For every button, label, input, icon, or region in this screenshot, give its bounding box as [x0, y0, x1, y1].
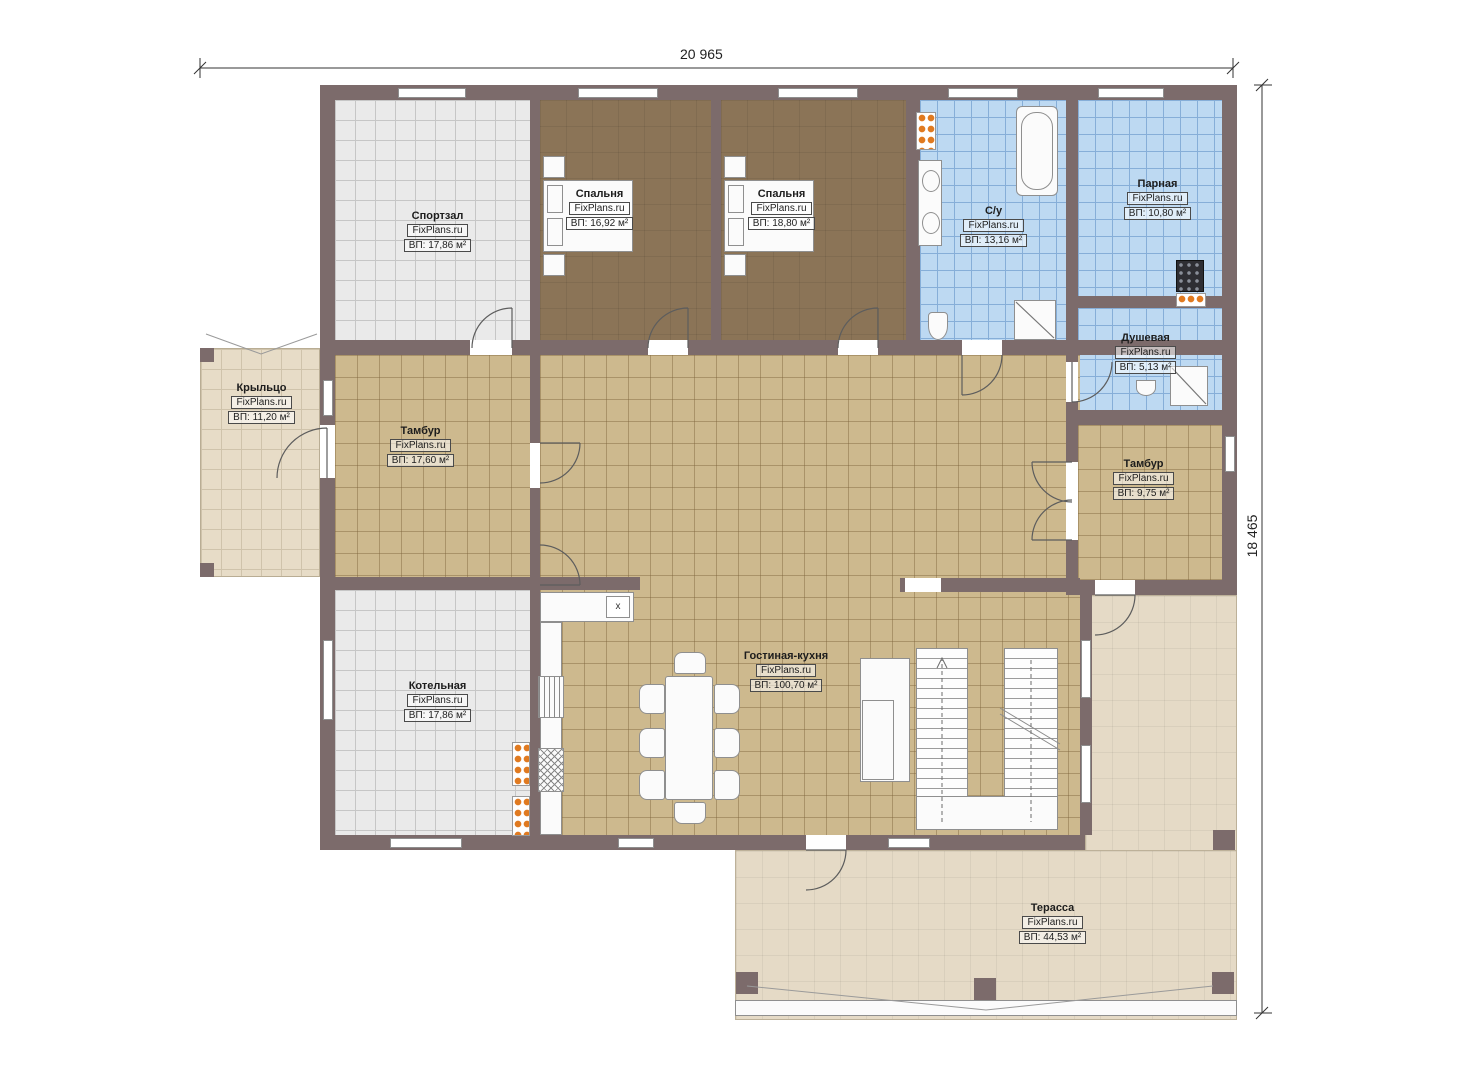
nightstand — [543, 254, 565, 276]
room-area: ВП: 100,70 м² — [750, 679, 823, 692]
room-name: Терасса — [995, 902, 1110, 914]
door-gap-bedroom2 — [838, 340, 878, 355]
chair — [674, 652, 706, 674]
sauna-heater-icon — [1176, 293, 1206, 307]
room-label-vestibule-left: Тамбур FixPlans.ru ВП: 17,60 м² — [363, 425, 478, 467]
sink-basin — [1136, 380, 1156, 396]
nightstand — [543, 156, 565, 178]
wall-mid-horizontal — [320, 340, 1222, 355]
chair — [714, 728, 740, 758]
door-gap-vestR-terrace — [1095, 580, 1135, 595]
door-gap-bedroom1 — [648, 340, 688, 355]
room-area: ВП: 9,75 м² — [1113, 487, 1175, 500]
room-watermark: FixPlans.ru — [407, 224, 467, 237]
stairs-flight — [1004, 648, 1058, 808]
room-area: ВП: 44,53 м² — [1019, 931, 1086, 944]
door-gap-stairs — [905, 578, 941, 592]
room-area: ВП: 5,13 м² — [1115, 361, 1177, 374]
room-label-sauna: Парная FixPlans.ru ВП: 10,80 м² — [1100, 178, 1215, 220]
window — [323, 380, 333, 416]
wall-kitchen — [540, 577, 640, 590]
room-area: ВП: 17,86 м² — [404, 709, 471, 722]
room-label-bedroom-1: Спальня FixPlans.ru ВП: 16,92 м² — [542, 188, 657, 230]
room-label-boiler-room: Котельная FixPlans.ru ВП: 17,86 м² — [380, 680, 495, 722]
room-area: ВП: 17,86 м² — [404, 239, 471, 252]
chair — [714, 770, 740, 800]
room-name: Парная — [1100, 178, 1215, 190]
boiler-equipment-icon — [512, 742, 530, 786]
wall-vestL-bottom — [320, 577, 540, 590]
room-name: Спортзал — [380, 210, 495, 222]
window — [948, 88, 1018, 98]
room-name: Гостиная-кухня — [726, 650, 846, 662]
stairs-flight — [916, 648, 968, 808]
door-gap-shower — [1066, 362, 1078, 402]
window — [578, 88, 658, 98]
stairs-landing — [916, 796, 1058, 830]
room-label-vestibule-right: Тамбур FixPlans.ru ВП: 9,75 м² — [1086, 458, 1201, 500]
wall-bedroom1-bedroom2 — [711, 100, 721, 340]
room-watermark: FixPlans.ru — [569, 202, 629, 215]
room-label-living-kitchen: Гостиная-кухня FixPlans.ru ВП: 100,70 м² — [726, 650, 846, 692]
floor-plan: x — [0, 0, 1474, 1080]
room-name: Спальня — [724, 188, 839, 200]
room-name: С/у — [936, 205, 1051, 217]
room-area: ВП: 11,20 м² — [228, 411, 295, 424]
window — [778, 88, 858, 98]
room-area: ВП: 13,16 м² — [960, 234, 1027, 247]
chair — [674, 802, 706, 824]
nightstand — [724, 254, 746, 276]
room-watermark: FixPlans.ru — [1022, 916, 1082, 929]
door-gap-porch — [320, 425, 335, 478]
window — [1081, 745, 1091, 803]
room-name: Тамбур — [1086, 458, 1201, 470]
door-gap-terrace — [806, 835, 846, 850]
wall-gym-bedroom1 — [530, 100, 540, 340]
room-area: ВП: 18,80 м² — [748, 217, 815, 230]
door-gap-vestR — [1066, 462, 1078, 540]
stove-icon — [538, 748, 564, 792]
room-label-porch: Крыльцо FixPlans.ru ВП: 11,20 м² — [204, 382, 319, 424]
kitchen-sink: x — [606, 596, 630, 618]
room-watermark: FixPlans.ru — [963, 219, 1023, 232]
fridge-icon — [538, 676, 564, 718]
room-watermark: FixPlans.ru — [1113, 472, 1173, 485]
terrace-post — [736, 972, 758, 994]
window — [618, 838, 654, 848]
shower-tray — [1014, 300, 1056, 340]
room-area: ВП: 10,80 м² — [1124, 207, 1191, 220]
sink-basin — [922, 170, 940, 192]
door-gap-vestL — [530, 443, 540, 488]
kitchen-counter — [540, 622, 562, 835]
chair — [639, 728, 665, 758]
window — [323, 640, 333, 720]
room-label-shower-room: Душевая FixPlans.ru ВП: 5,13 м² — [1088, 332, 1203, 374]
window — [888, 838, 930, 848]
bathtub-basin — [1021, 112, 1053, 190]
room-watermark: FixPlans.ru — [756, 664, 816, 677]
porch-post — [200, 563, 214, 577]
terrace-post — [974, 978, 996, 1000]
wall-exterior-right — [1222, 85, 1237, 595]
room-watermark: FixPlans.ru — [751, 202, 811, 215]
room-label-bedroom-2: Спальня FixPlans.ru ВП: 18,80 м² — [724, 188, 839, 230]
wall-shower-bottom — [1066, 410, 1237, 425]
window — [1225, 436, 1235, 472]
dimension-height-label: 18 465 — [1244, 496, 1260, 576]
terrace-step — [735, 1000, 1237, 1016]
dining-table — [665, 676, 713, 800]
room-name: Котельная — [380, 680, 495, 692]
wall-bath-sauna — [1066, 100, 1078, 355]
room-name: Крыльцо — [204, 382, 319, 394]
terrace-post — [1212, 972, 1234, 994]
terrace-post — [1213, 830, 1235, 850]
nightstand — [724, 156, 746, 178]
room-name: Спальня — [542, 188, 657, 200]
window — [390, 838, 462, 848]
room-watermark: FixPlans.ru — [1115, 346, 1175, 359]
room-name: Тамбур — [363, 425, 478, 437]
room-area: ВП: 16,92 м² — [566, 217, 633, 230]
toilet — [928, 312, 948, 340]
window — [1098, 88, 1164, 98]
porch-post — [200, 348, 214, 362]
room-label-bathroom: С/у FixPlans.ru ВП: 13,16 м² — [936, 205, 1051, 247]
room-name: Душевая — [1088, 332, 1203, 344]
room-label-terrace: Терасса FixPlans.ru ВП: 44,53 м² — [995, 902, 1110, 944]
chair — [639, 684, 665, 714]
room-area: ВП: 17,60 м² — [387, 454, 454, 467]
dimension-width-label: 20 965 — [680, 46, 723, 62]
door-gap-bathroom — [962, 340, 1002, 355]
room-watermark: FixPlans.ru — [1127, 192, 1187, 205]
washer-icon — [916, 112, 936, 150]
sauna-stove-icon — [1176, 260, 1204, 292]
door-gap-gym — [470, 340, 512, 355]
boiler-equipment-icon — [512, 796, 530, 836]
chair — [639, 770, 665, 800]
room-watermark: FixPlans.ru — [407, 694, 467, 707]
room-watermark: FixPlans.ru — [390, 439, 450, 452]
window — [398, 88, 466, 98]
floor-vestibule-right — [1078, 425, 1222, 580]
room-watermark: FixPlans.ru — [231, 396, 291, 409]
room-label-gym: Спортзал FixPlans.ru ВП: 17,86 м² — [380, 210, 495, 252]
sofa-seat — [862, 700, 894, 780]
window — [1081, 640, 1091, 698]
wall-vestR-bottom — [1066, 580, 1237, 595]
